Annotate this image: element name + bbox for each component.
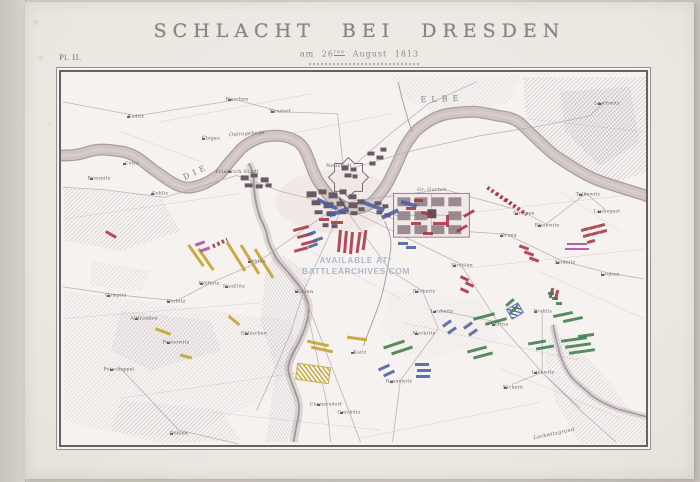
map-title: SCHLACHT BEI DRESDEN [25,20,694,42]
subtitle-rest: August 1813 [353,50,419,59]
map-label: Gorbitz [166,300,185,305]
map-label: Blasewitz [535,224,560,229]
map-label: Pieschen [226,98,249,103]
map-label: Briesnitz [87,177,110,182]
map-label: Übigau [202,137,220,142]
map-label: Gompitz [105,294,126,299]
map-label: Coschütz [337,411,360,416]
scan-edge [0,0,26,482]
map-subtitle: am 26ten August 1813 [25,49,694,59]
subtitle-day: 26 [322,50,334,59]
subtitle-prefix: am [300,50,314,59]
map-label: Kaitz [353,351,366,356]
foxing-spot [47,122,52,127]
map-label: Potschappel [104,368,135,373]
watermark-line-2: BATTLEARCHIVES.COM [256,266,456,278]
map-content: DIEELBEFriedrich StadtOstragehegeNeustad… [61,72,646,445]
watermark: AVAILABLE AT* BATTLEARCHIVES.COM [256,255,456,278]
map-label: Dölzschen [241,332,267,337]
map-label: Leubnitz [431,310,453,315]
map-label: Mockritz [413,332,436,337]
map-label: Kaditz [128,115,144,120]
map-label: Tolkewitz [576,193,600,198]
map-label: Räcknitz [413,290,435,295]
map-label: Neudorf [269,110,290,115]
map-frame-inner-border: DIEELBEFriedrich StadtOstragehegeNeustad… [59,70,648,447]
map-label: Seidnitz [555,261,576,266]
subtitle-ordinal: ten [334,49,345,56]
map-label: Loschwitz [594,102,620,107]
map-label: Lockwitzgrund [533,427,575,442]
map-label: Bannewitz [386,380,413,385]
map-label: Cotta [125,162,139,167]
map-label: Naußlitz [223,285,245,290]
imprint-line [309,63,419,65]
map-label: Pesterwitz [163,341,190,346]
map-label: Torna [494,323,509,328]
map-label: Nickern [503,386,523,391]
map-label: Laubegast [594,210,621,215]
scanned-map-page: { "page": { "plate_label": "Pl. II.", "t… [0,0,700,482]
map-label: ELBE [420,94,463,104]
map-label: Prohlis [534,310,552,315]
map-label: DIE [182,162,211,182]
map-label: Wölfnitz [198,282,219,287]
map-label: Plauen [294,289,313,295]
map-frame: DIEELBEFriedrich StadtOstragehegeNeustad… [56,67,651,450]
map-label: Gr. Garten [417,187,447,193]
watermark-line-1: AVAILABLE AT* [256,255,456,266]
map-label: Döhlen [170,432,188,437]
map-label: Lockwitz [532,371,555,376]
map-label: Neustadt [326,163,352,169]
map-label: Gohlis [152,192,168,197]
map-label: Leuben [601,273,620,278]
map-label: Friedrich Stadt [215,169,258,175]
map-label: Ostragehege [229,130,265,138]
map-label: Striesen [513,212,534,217]
map-label: Gruna [501,234,517,239]
map-label: Altfranken [130,317,157,322]
map-paper-sheet: Pl. II. SCHLACHT BEI DRESDEN am 26ten Au… [25,2,694,479]
map-label: Cunnersdorf [310,403,342,408]
